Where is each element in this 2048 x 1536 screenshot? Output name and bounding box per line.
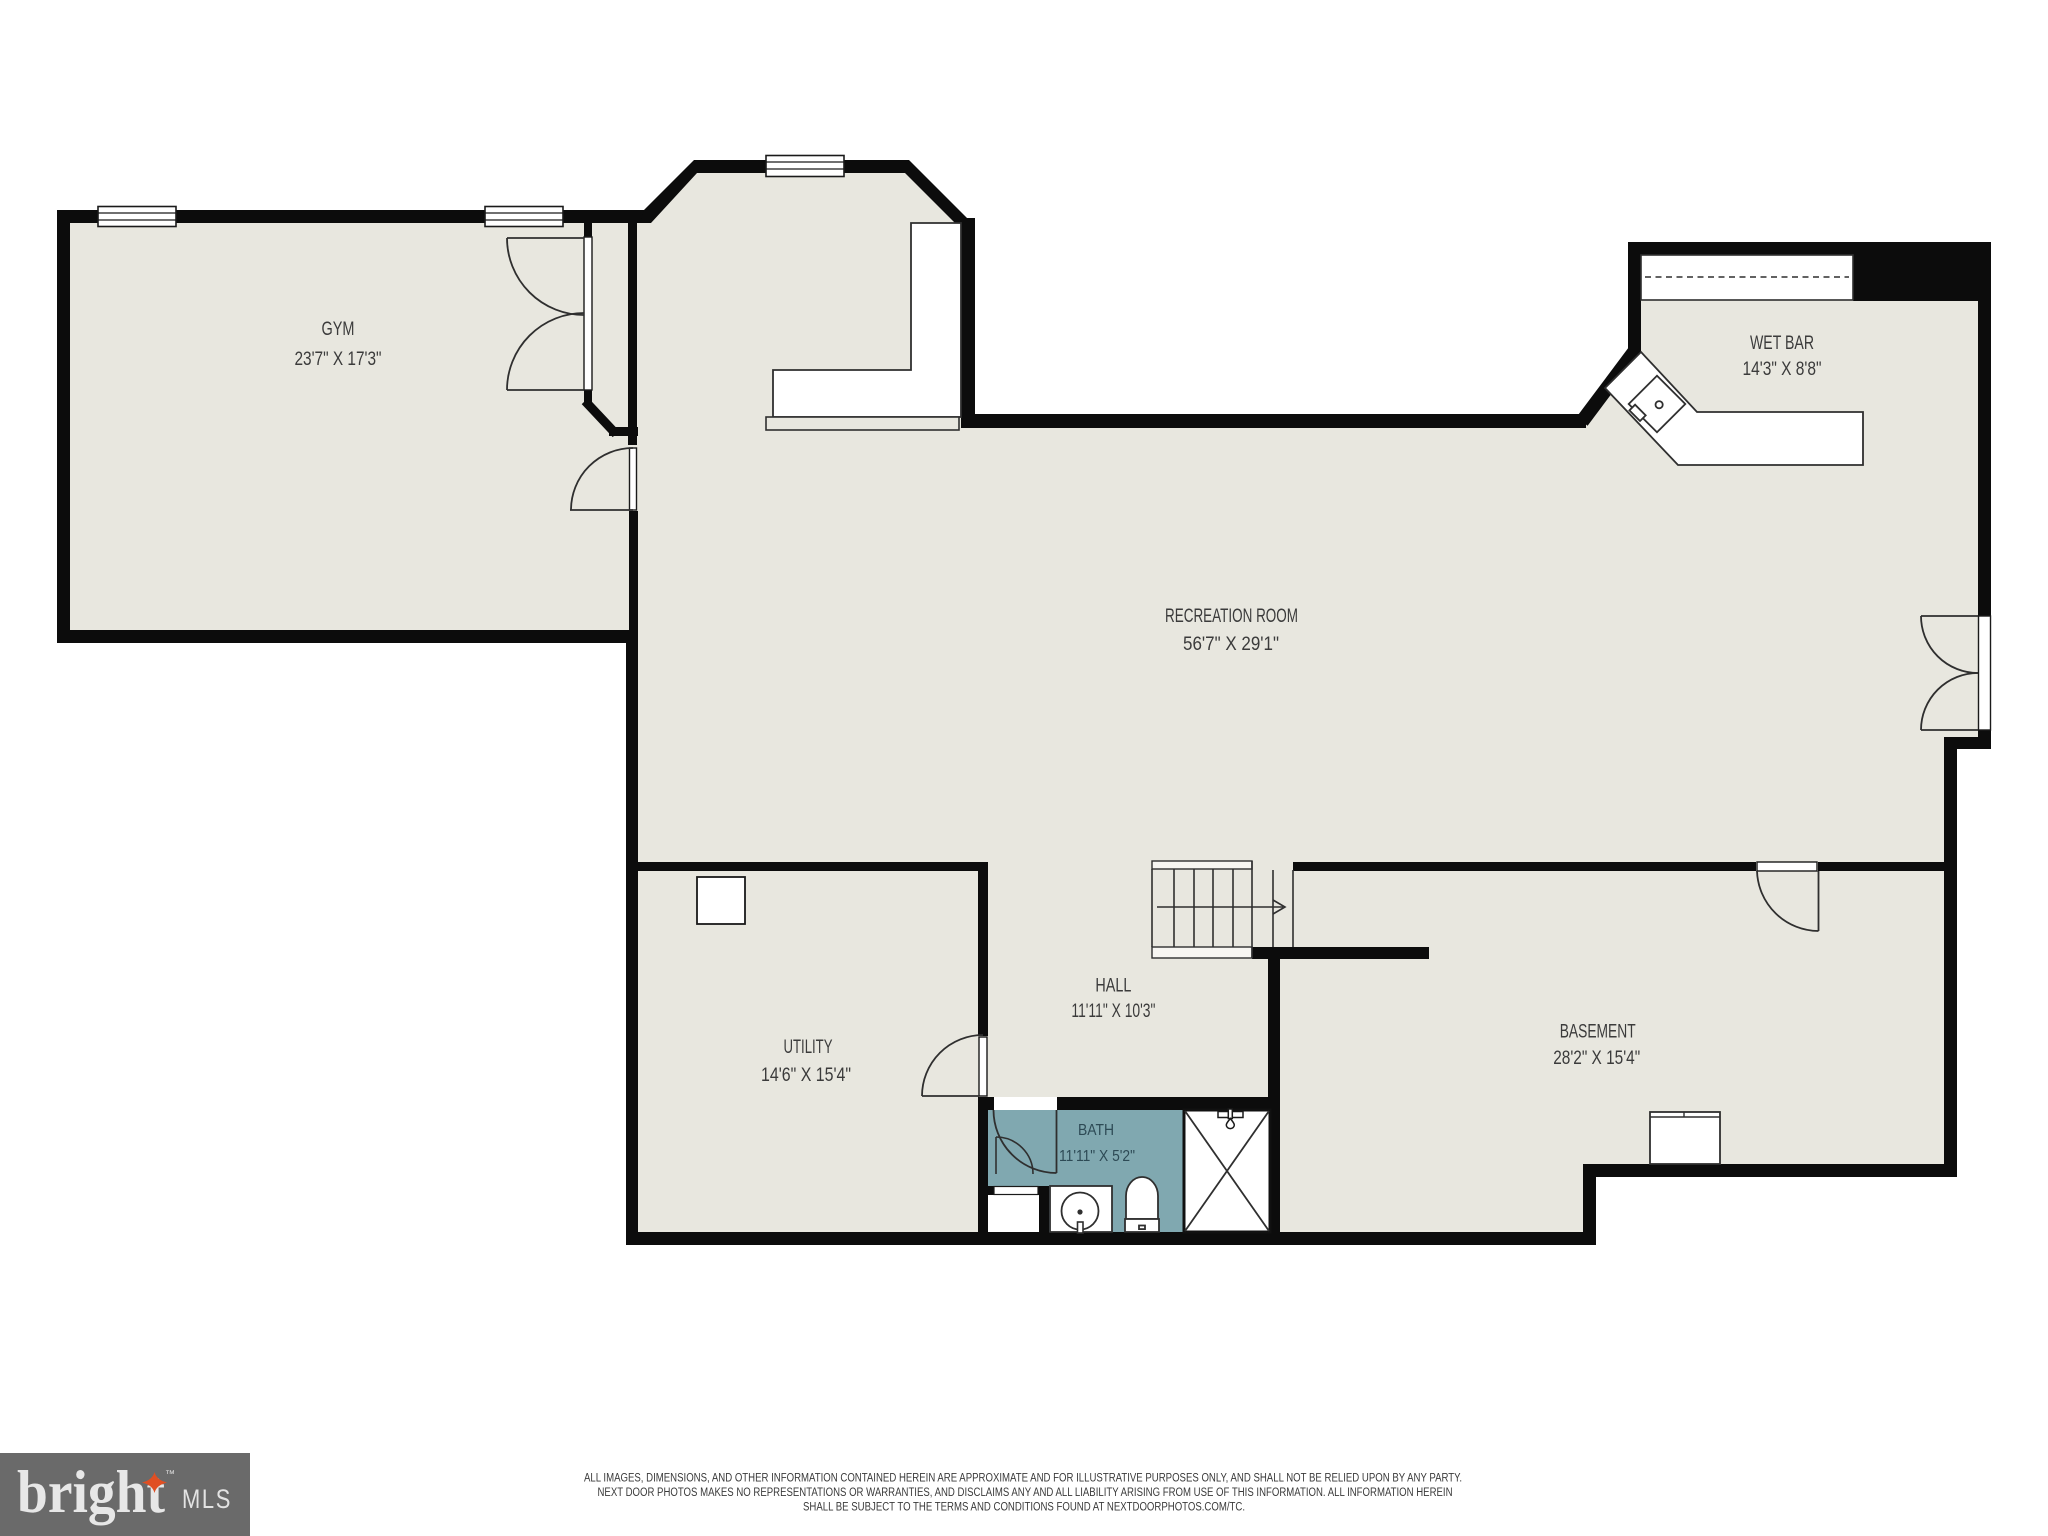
svg-text:14'3" X 8'8": 14'3" X 8'8" [1743,358,1822,380]
svg-text:28'2" X 15'4": 28'2" X 15'4" [1553,1047,1640,1069]
svg-text:GYM: GYM [322,318,355,340]
svg-text:11'11" X 10'3": 11'11" X 10'3" [1071,1000,1155,1022]
svg-text:HALL: HALL [1095,975,1131,997]
svg-text:NEXT DOOR PHOTOS MAKES NO REPR: NEXT DOOR PHOTOS MAKES NO REPRESENTATION… [598,1487,1453,1499]
svg-text:BATH: BATH [1078,1122,1114,1139]
svg-text:11'11" X 5'2": 11'11" X 5'2" [1059,1148,1135,1165]
svg-text:SHALL BE SUBJECT TO THE TERMS: SHALL BE SUBJECT TO THE TERMS AND CONDIT… [803,1502,1245,1514]
svg-text:WET BAR: WET BAR [1750,332,1814,354]
svg-text:23'7" X 17'3": 23'7" X 17'3" [295,348,382,370]
svg-text:UTILITY: UTILITY [784,1036,833,1058]
svg-text:MLS: MLS [182,1484,232,1514]
svg-text:ALL IMAGES, DIMENSIONS, AND OT: ALL IMAGES, DIMENSIONS, AND OTHER INFORM… [584,1473,1462,1485]
svg-text:RECREATION ROOM: RECREATION ROOM [1165,605,1298,627]
svg-text:14'6" X 15'4": 14'6" X 15'4" [761,1064,851,1086]
svg-text:bright: bright [17,1459,165,1525]
svg-text:56'7" X 29'1": 56'7" X 29'1" [1183,633,1279,655]
svg-text:™: ™ [165,1469,175,1480]
svg-text:BASEMENT: BASEMENT [1560,1020,1636,1042]
